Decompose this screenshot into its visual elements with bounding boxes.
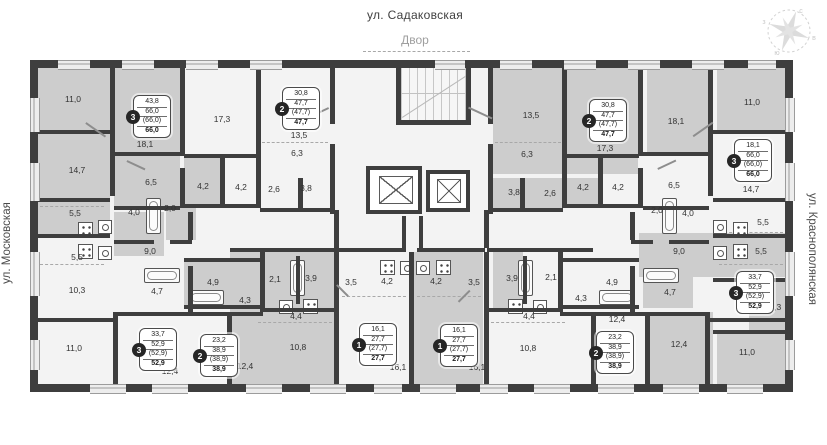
wall-segment <box>417 248 485 252</box>
apartment-area-value: 23,2 <box>600 334 630 344</box>
window <box>748 60 776 70</box>
room-area-label: 17,3 <box>597 143 614 153</box>
room-area-label: 3,9 <box>305 273 317 283</box>
room-area-label: 3,5 <box>345 277 357 287</box>
apartment-area-value: (66,0) <box>137 117 167 127</box>
window <box>30 98 40 132</box>
room-divider-dashed <box>417 296 481 297</box>
floor-plan-canvas: ул. Садаковская Двор с в ю з ул. Московс… <box>0 0 827 445</box>
stove-icon <box>436 260 451 275</box>
room-divider-dashed <box>40 206 104 207</box>
apartment-area-value: 66,0 <box>738 171 768 180</box>
room-area-label: 4,2 <box>197 181 209 191</box>
apartment-area-value: 18,1 <box>738 142 768 152</box>
apartment-area-value: 38,9 <box>204 366 234 375</box>
apartment-area-value: 27,7 <box>444 337 474 347</box>
wall-segment <box>484 210 489 248</box>
apartment-area-value: (52,9) <box>740 293 770 303</box>
wall-segment <box>113 312 118 384</box>
apartment-number: 3 <box>729 286 743 300</box>
staircase-landing-line <box>401 93 466 94</box>
window <box>122 60 154 70</box>
window <box>785 252 795 296</box>
sink-icon <box>98 220 112 234</box>
wall-segment <box>336 248 404 252</box>
wall-segment <box>710 318 785 322</box>
apartment-area-value: 47,7 <box>286 100 316 110</box>
wall-segment <box>113 312 263 316</box>
room-area-label: 11,0 <box>66 343 82 353</box>
wall-segment <box>220 158 225 208</box>
room-area-label: 2,6 <box>268 184 280 194</box>
window <box>420 384 456 394</box>
sink-icon <box>98 246 112 260</box>
apartment-area-value: 16,1 <box>444 327 474 337</box>
room-area-label: 17,3 <box>214 114 231 124</box>
apartment-number: 1 <box>352 338 366 352</box>
apartment-area-value: 52,9 <box>143 341 173 351</box>
room-area-label: 3,8 <box>300 183 312 193</box>
apartment-area-value: 52,9 <box>143 360 173 369</box>
apartment-area-value: 38,9 <box>600 344 630 354</box>
wall-segment <box>645 312 650 384</box>
room-area-label: 12,4 <box>609 314 626 324</box>
elevator-cross-icon <box>379 176 413 204</box>
apartment-area-value: 47,7 <box>593 131 623 140</box>
wall-segment <box>567 204 639 208</box>
window <box>534 384 570 394</box>
wall-segment <box>466 68 471 125</box>
apartment-number: 3 <box>132 343 146 357</box>
apartment-area-value: 27,7 <box>363 336 393 346</box>
elevator-shaft <box>426 170 470 212</box>
wall-segment <box>561 305 639 309</box>
apartment-badge[interactable]: 223,238,9(38,9)38,9 <box>596 331 634 374</box>
apartment-area-value: (27,7) <box>363 345 393 355</box>
wall-segment <box>713 130 785 134</box>
window <box>785 163 795 201</box>
apartment-number: 3 <box>727 154 741 168</box>
window <box>58 60 90 70</box>
window <box>663 384 699 394</box>
stove-icon <box>733 244 748 259</box>
wall-segment <box>396 68 401 125</box>
room-area-label: 5,5 <box>69 208 81 218</box>
apartment-area-value: 33,7 <box>740 274 770 284</box>
apartment-number: 2 <box>193 349 207 363</box>
building-plan: 11,014,718,117,36,54,24,213,56,32,63,85,… <box>0 0 827 445</box>
apartment-area-value: (66,0) <box>738 161 768 171</box>
apartment-area-value: 47,7 <box>593 112 623 122</box>
window <box>628 60 660 70</box>
room-area-label: 5,5 <box>757 217 769 227</box>
apartment-badge[interactable]: 116,127,7(27,7)27,7 <box>440 324 478 367</box>
wall-segment <box>705 312 710 384</box>
apartment-area-value: 30,8 <box>593 102 623 112</box>
elevator-shaft <box>366 166 422 214</box>
room-area-label: 11,0 <box>739 347 755 357</box>
elevator-cross-icon <box>437 179 461 203</box>
wall-segment <box>630 212 635 240</box>
apartment-area-value: 27,7 <box>363 355 393 364</box>
room-area-label: 14,7 <box>69 165 86 175</box>
window <box>30 340 40 370</box>
room-area-label: 4,4 <box>290 311 302 321</box>
apartment-area-value: 43,8 <box>137 98 167 108</box>
window <box>564 60 596 70</box>
window <box>90 384 126 394</box>
apartment-area-value: 47,7 <box>286 119 316 128</box>
apartment-area-value: 66,0 <box>137 108 167 118</box>
apartment-badge[interactable]: 230,847,7(47,7)47,7 <box>282 87 320 130</box>
wall-segment <box>334 210 339 248</box>
room-area-label: 4,2 <box>577 182 589 192</box>
window <box>152 384 188 394</box>
window <box>250 60 282 70</box>
room-area-label: 10,8 <box>290 342 307 352</box>
room-divider-dashed <box>719 264 783 265</box>
apartment-number: 2 <box>582 114 596 128</box>
wall-segment <box>520 178 525 212</box>
sink-icon <box>713 220 727 234</box>
wall-segment <box>669 240 709 244</box>
wall-segment <box>487 248 593 252</box>
room-area-label: 14,7 <box>743 184 760 194</box>
room-area-label: 6,3 <box>291 148 303 158</box>
wall-segment <box>114 240 154 244</box>
room-divider-dashed <box>40 264 104 265</box>
room-area-label: 18,1 <box>137 139 154 149</box>
apartment-area-value: (52,9) <box>143 350 173 360</box>
apartment-badge[interactable]: 318,166,0(66,0)66,0 <box>734 139 772 182</box>
wall-segment <box>561 258 639 262</box>
room-area-label: 4,7 <box>151 286 163 296</box>
room-area-label: 4,0 <box>128 207 140 217</box>
room-area-label: 18,1 <box>668 116 685 126</box>
apartment-number: 1 <box>433 339 447 353</box>
wall-segment <box>638 168 643 208</box>
room-area-label: 3,8 <box>508 187 520 197</box>
apartment-area-value: 38,9 <box>600 363 630 372</box>
wall-segment <box>184 204 256 208</box>
bathtub-icon <box>144 268 180 283</box>
window <box>435 60 465 70</box>
room-area-label: 2,6 <box>544 188 556 198</box>
apartment-badge[interactable]: 343,866,0(66,0)66,0 <box>133 95 171 138</box>
room-area-label: 3,5 <box>468 277 480 287</box>
room-area-label: 9,0 <box>144 246 156 256</box>
room-divider-dashed <box>342 296 406 297</box>
apartment-area-value: (47,7) <box>593 121 623 131</box>
room-divider-dashed <box>491 322 565 323</box>
room-area-label: 9,0 <box>673 246 685 256</box>
apartment-area-value: (38,9) <box>204 356 234 366</box>
apartment-badge[interactable]: 333,752,9(52,9)52,9 <box>139 328 177 371</box>
room-area-label: 2,0 <box>651 205 663 215</box>
room-area-label: 4,0 <box>682 208 694 218</box>
room-area-label: 13,5 <box>291 130 308 140</box>
window <box>30 252 40 296</box>
room-area-label: 4,3 <box>239 295 251 305</box>
room-area-label: 10,3 <box>69 285 86 295</box>
wall-segment <box>638 68 643 156</box>
room-area-label: 13,5 <box>523 110 540 120</box>
apartment-area-value: (47,7) <box>286 109 316 119</box>
bathtub-icon <box>188 290 224 305</box>
wall-segment <box>38 318 113 322</box>
room-area-label: 2,0 <box>164 203 176 213</box>
window <box>500 60 532 70</box>
wall-segment <box>396 120 471 125</box>
room-area-label: 2,1 <box>269 274 281 284</box>
window <box>246 384 282 394</box>
apartment-badge[interactable]: 223,238,9(38,9)38,9 <box>200 334 238 377</box>
room-divider-dashed <box>262 142 328 143</box>
wall-segment <box>184 154 256 158</box>
room-divider-dashed <box>495 142 561 143</box>
room-area-label: 4,7 <box>664 287 676 297</box>
room-area-label: 4,9 <box>207 277 219 287</box>
window <box>186 60 218 70</box>
window <box>692 60 724 70</box>
wall-segment <box>114 152 180 156</box>
room-area-label: 11,0 <box>744 97 760 107</box>
wall-segment <box>330 68 335 124</box>
wall-segment <box>184 305 262 309</box>
room-area-label: 4,2 <box>235 182 247 192</box>
room-area-label: 4,2 <box>381 276 393 286</box>
wall-segment <box>402 216 406 252</box>
window <box>30 163 40 201</box>
wall-segment <box>562 68 567 208</box>
wall-segment <box>334 252 339 384</box>
apartment-area-value: 52,9 <box>740 303 770 312</box>
room-area-label: 12,4 <box>671 339 688 349</box>
room-area-label: 12,4 <box>237 361 254 371</box>
apartment-badge[interactable]: 230,847,7(47,7)47,7 <box>589 99 627 142</box>
wall-segment <box>713 330 785 334</box>
room-area-label: 4,3 <box>575 293 587 303</box>
apartment-area-value: (38,9) <box>600 353 630 363</box>
window <box>785 340 795 370</box>
wall-segment <box>631 240 653 244</box>
wall-segment <box>643 152 709 156</box>
room-area-label: 4,9 <box>606 277 618 287</box>
wall-segment <box>523 256 527 304</box>
room-area-label: 11,0 <box>65 94 81 104</box>
wall-segment <box>188 212 193 240</box>
room-area-label: 4,2 <box>430 276 442 286</box>
wall-segment <box>598 158 603 208</box>
room-divider-dashed <box>258 322 332 323</box>
wall-segment <box>180 168 185 208</box>
window <box>727 384 763 394</box>
apartment-area-value: 33,7 <box>143 331 173 341</box>
apartment-area-value: 30,8 <box>286 90 316 100</box>
room-area-label: 4,2 <box>612 182 624 192</box>
apartment-number: 2 <box>275 102 289 116</box>
room-area-shaded <box>717 334 785 384</box>
stove-icon <box>380 260 395 275</box>
room-area-label: 6,5 <box>145 177 157 187</box>
wall-segment <box>567 154 639 158</box>
apartment-area-value: 38,9 <box>204 347 234 357</box>
apartment-badge[interactable]: 116,127,7(27,7)27,7 <box>359 323 397 366</box>
apartment-badge[interactable]: 333,752,9(52,9)52,9 <box>736 271 774 314</box>
wall-segment <box>409 252 414 384</box>
wall-segment <box>38 234 110 238</box>
wall-segment <box>713 234 785 238</box>
window <box>785 98 795 132</box>
apartment-area-value: 52,9 <box>740 284 770 294</box>
wall-segment <box>560 312 710 316</box>
window <box>374 384 402 394</box>
wall-segment <box>170 240 192 244</box>
window <box>480 384 508 394</box>
room-area-label: 6,5 <box>668 180 680 190</box>
wall-segment <box>230 248 336 252</box>
wall-segment <box>260 208 330 212</box>
wall-segment <box>419 216 423 252</box>
wall-segment <box>256 68 261 208</box>
apartment-area-value: 66,0 <box>738 152 768 162</box>
apartment-area-value: 16,1 <box>363 326 393 336</box>
room-divider-dashed <box>719 232 783 233</box>
room-area-label: 3,9 <box>506 273 518 283</box>
wall-segment <box>184 258 262 262</box>
room-area-label: 10,8 <box>520 343 537 353</box>
room-area-label: 4,4 <box>523 311 535 321</box>
apartment-area-value: (27,7) <box>444 346 474 356</box>
room-area-shaded <box>647 68 713 152</box>
bathtub-icon <box>146 198 161 234</box>
wall-segment <box>296 256 300 304</box>
sink-icon <box>713 246 727 260</box>
wall-segment <box>110 68 115 196</box>
apartment-area-value: 23,2 <box>204 337 234 347</box>
wall-segment <box>180 68 185 156</box>
room-area-label: 2,1 <box>545 272 557 282</box>
apartment-number: 2 <box>589 346 603 360</box>
bathtub-icon <box>643 268 679 283</box>
room-area-label: 5,5 <box>755 246 767 256</box>
sink-icon <box>416 261 430 275</box>
bathtub-icon <box>662 198 677 234</box>
apartment-area-value: 27,7 <box>444 356 474 365</box>
room-area-label: 6,3 <box>521 149 533 159</box>
wall-segment <box>330 144 335 214</box>
room-area-label: 5,5 <box>71 252 83 262</box>
wall-segment <box>488 144 493 214</box>
wall-segment <box>713 198 785 202</box>
wall-segment <box>38 198 110 202</box>
wall-segment <box>493 208 563 212</box>
window <box>310 384 346 394</box>
window <box>598 384 634 394</box>
apartment-area-value: 66,0 <box>137 127 167 136</box>
apartment-number: 3 <box>126 110 140 124</box>
